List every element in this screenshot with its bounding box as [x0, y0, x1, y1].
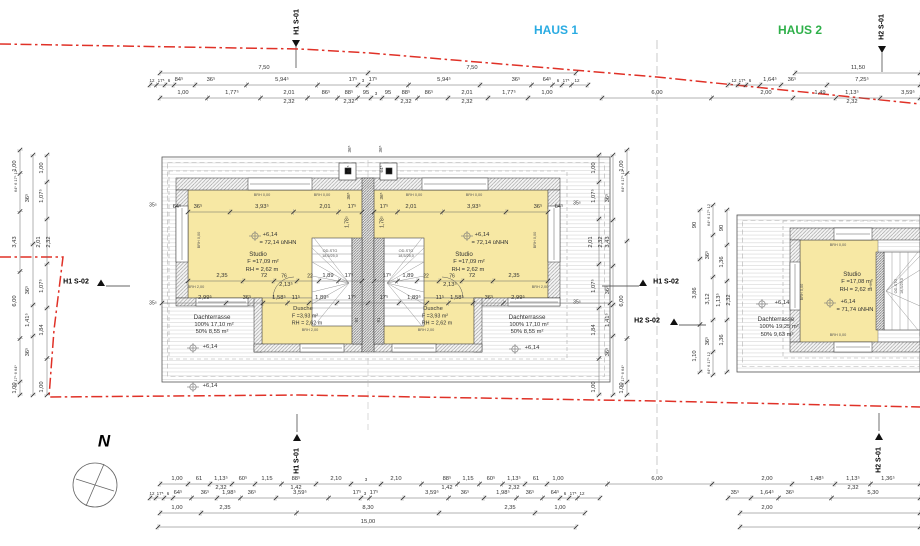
haus2-stair [884, 252, 920, 330]
north-compass [73, 463, 117, 507]
haus2-plan [737, 215, 920, 372]
haus1-stair-right [384, 238, 424, 326]
haus2-studio [800, 240, 878, 342]
floor-plan-drawing: HAUS 1 HAUS 2 H1 S-01H2 S-01H1 S-01H2 S-… [0, 0, 920, 546]
haus1-plan [162, 157, 610, 430]
drawing-canvas [0, 0, 920, 546]
